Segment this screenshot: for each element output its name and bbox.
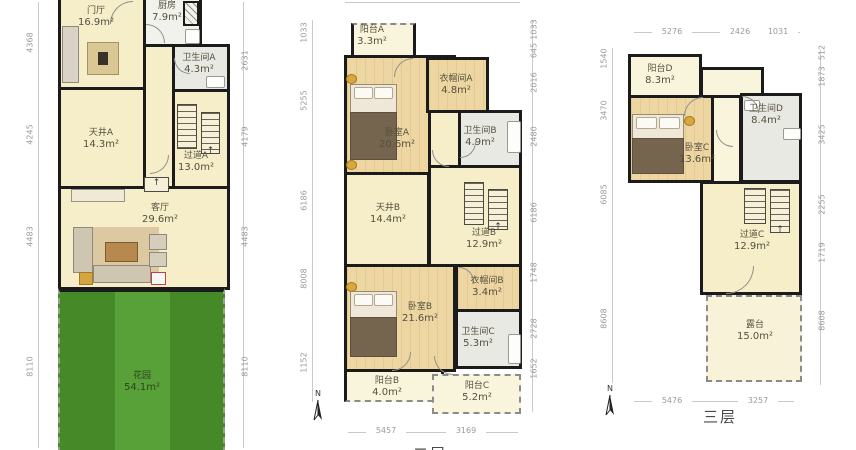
dim-label: 1652 (530, 349, 539, 389)
room-name: 厨房 (139, 1, 195, 12)
room-label-balcony-a: 阳台A 3.3m² (344, 25, 400, 48)
room-area: 5.2m² (449, 392, 505, 404)
dim-label: 2016 (530, 63, 539, 103)
room-area: 8.4m² (738, 115, 794, 127)
floor1-garden (58, 288, 225, 450)
bath-b-tub (507, 121, 521, 153)
room-label-balcony-d: 阳台D 8.3m² (632, 64, 688, 87)
room-label-balcony-c: 阳台C 5.2m² (449, 381, 505, 404)
living-chair-2 (149, 252, 167, 267)
room-label-foyer: 门厅 16.9m² (68, 6, 124, 29)
room-label-bath-c: 卫生间C 5.3m² (450, 327, 506, 350)
room-area: 4.8m² (428, 85, 484, 97)
floor3-stairs-up: ↑ (770, 189, 790, 233)
room-name: 卫生间A (171, 53, 227, 64)
dim-label: 4483 (26, 217, 35, 257)
room-label-hall-a: 过道A 13.0m² (168, 151, 224, 174)
room-label-bath-a: 卫生间A 4.3m² (171, 53, 227, 76)
room-area: 12.9m² (724, 241, 780, 253)
room-name: 卧室A (369, 128, 425, 139)
floor3-name: 三层 (690, 406, 750, 427)
living-side-table (79, 272, 93, 285)
room-name: 过道C (724, 230, 780, 241)
dim-label: 1152 (300, 343, 309, 383)
room-area: 7.9m² (139, 12, 195, 24)
dim-label: 2426 (720, 27, 760, 36)
room-label-hall-c: 过道C 12.9m² (724, 230, 780, 253)
living-cabinet (71, 189, 125, 202)
nightstand (684, 116, 695, 126)
room-area: 16.9m² (68, 17, 124, 29)
floor3-stairs-down (744, 188, 766, 224)
floor1-stairs-down (177, 104, 197, 149)
bed-b (350, 291, 397, 357)
room-name: 衣帽间A (428, 74, 484, 85)
dim-label: 4245 (26, 115, 35, 155)
dim-label: 8110 (26, 347, 35, 387)
dim-line-left (612, 48, 613, 383)
room-name: 卫生间B (452, 126, 508, 137)
pillow (354, 294, 373, 306)
pillow (354, 87, 373, 99)
dim-label: 6085 (600, 175, 609, 215)
north-arrow: N (602, 385, 618, 421)
room-name: 过道A (168, 151, 224, 162)
foyer-sofa (62, 26, 79, 83)
blanket (350, 317, 397, 357)
room-area: 15.0m² (727, 331, 783, 343)
dim-label: 5276 (652, 27, 692, 36)
dim-label: 3425 (818, 115, 827, 155)
room-name: 卧室B (392, 302, 448, 313)
room-name: 卧室C (669, 143, 725, 154)
dim-label: 1033 (300, 13, 309, 53)
room-area: 4.0m² (359, 387, 415, 399)
room-area: 14.3m² (73, 139, 129, 151)
room-name: 天井A (73, 128, 129, 139)
dim-label: 5457 (366, 426, 406, 435)
dim-label: 8008 (300, 259, 309, 299)
room-label-bath-d: 卫生间D 8.4m² (738, 104, 794, 127)
room-label-kitchen: 厨房 7.9m² (139, 1, 195, 24)
dim-label: 2728 (530, 309, 539, 349)
room-name: 卫生间C (450, 327, 506, 338)
floor1-kitchen-sink (185, 29, 200, 44)
room-label-court-b: 天井B 14.4m² (360, 203, 416, 226)
room-name: 阳台D (632, 64, 688, 75)
dim-label: 6186 (300, 181, 309, 221)
dim-label: 8608 (818, 301, 827, 341)
room-name: 花园 (114, 371, 170, 382)
living-sofa-left (73, 227, 93, 273)
pillow (374, 294, 393, 306)
north-label: N (310, 390, 326, 398)
room-name: 卫生间D (738, 104, 794, 115)
room-area: 4.9m² (452, 137, 508, 149)
dim-label: 2631 (241, 41, 250, 81)
dim-label: 4368 (26, 23, 35, 63)
room-name: 阳台B (359, 376, 415, 387)
room-label-closet-a: 衣帽间A 4.8m² (428, 74, 484, 97)
room-label-balcony-b: 阳台B 4.0m² (359, 376, 415, 399)
north-arrow-icon (312, 398, 324, 422)
north-arrow: N (310, 390, 326, 426)
room-area: 13.0m² (168, 162, 224, 174)
room-area: 29.6m² (132, 214, 188, 226)
dim-label: 2255 (818, 185, 827, 225)
room-area: 4.3m² (171, 64, 227, 76)
dim-label: 1748 (530, 253, 539, 293)
north-label: N (602, 385, 618, 393)
room-label-court-a: 天井A 14.3m² (73, 128, 129, 151)
dim-label: 5476 (652, 396, 692, 405)
dim-label: 8110 (241, 347, 250, 387)
floor2-stairs-down (464, 182, 484, 225)
dim-label: 4179 (241, 117, 250, 157)
room-label-living: 客厅 29.6m² (132, 203, 188, 226)
dim-label: 2480 (530, 117, 539, 157)
living-coffee-table (105, 242, 138, 262)
living-chair-1 (149, 234, 167, 250)
north-arrow-icon (604, 393, 616, 417)
nightstand (346, 74, 357, 84)
room-name: 门厅 (68, 6, 124, 17)
floor1-stairs-up: ↑ (201, 112, 220, 154)
room-label-hall-b: 过道B 12.9m² (456, 228, 512, 251)
living-tv-stand (151, 272, 166, 285)
living-sofa-bottom (93, 265, 151, 283)
room-area: 14.4m² (360, 214, 416, 226)
room-name: 露台 (727, 320, 783, 331)
dim-label: 1873 (818, 57, 827, 97)
floor2-stairs-up: ↑ (488, 189, 508, 230)
dim-label: 4483 (241, 217, 250, 257)
dim-line-left (312, 20, 313, 402)
dim-label: 3257 (738, 396, 778, 405)
dim-line-left (38, 2, 39, 448)
room-label-bed-c: 卧室C 13.6m² (669, 143, 725, 166)
room-label-bed-a: 卧室A 20.6m² (369, 128, 425, 151)
room-label-garden: 花园 54.1m² (114, 371, 170, 394)
room-label-terrace: 露台 15.0m² (727, 320, 783, 343)
dim-label: 1031 (758, 27, 798, 36)
dim-label: 3169 (446, 426, 486, 435)
room-area: 5.3m² (450, 338, 506, 350)
room-area: 3.3m² (344, 36, 400, 48)
room-area: 8.3m² (632, 75, 688, 87)
bath-a-basin (206, 76, 225, 88)
room-area: 20.6m² (369, 139, 425, 151)
dim-label: 8608 (600, 299, 609, 339)
bath-d-fixture (783, 128, 801, 140)
dim-label: 5255 (300, 81, 309, 121)
floorplan-canvas: ↑ ↑ 门厅 16.9m² 厨房 7.9m² 卫生间A 4.3m² 天井A 14… (0, 0, 856, 450)
pillow (636, 117, 657, 129)
dim-label: 1719 (818, 233, 827, 273)
dim-line-top-cut (345, 2, 520, 3)
room-label-bed-b: 卧室B 21.6m² (392, 302, 448, 325)
dim-label: 1540 (600, 39, 609, 79)
room-name: 阳台C (449, 381, 505, 392)
pillow (659, 117, 680, 129)
dim-label: 6186 (530, 193, 539, 233)
floor2-name: 二层 (400, 443, 460, 450)
room-name: 过道B (456, 228, 512, 239)
living-step: ↑ (144, 177, 169, 192)
room-name: 天井B (360, 203, 416, 214)
room-name: 衣帽间B (459, 276, 515, 287)
room-name: 阳台A (344, 25, 400, 36)
room-area: 21.6m² (392, 313, 448, 325)
bath-c-tub (508, 334, 521, 364)
dim-label: 3470 (600, 91, 609, 131)
room-name: 客厅 (132, 203, 188, 214)
room-area: 12.9m² (456, 239, 512, 251)
room-area: 54.1m² (114, 382, 170, 394)
pillow (374, 87, 393, 99)
room-label-bath-b: 卫生间B 4.9m² (452, 126, 508, 149)
room-label-closet-b: 衣帽间B 3.4m² (459, 276, 515, 299)
nightstand (346, 160, 357, 170)
foyer-table-decor (98, 52, 108, 65)
nightstand (346, 282, 357, 292)
room-area: 3.4m² (459, 287, 515, 299)
room-area: 13.6m² (669, 154, 725, 166)
